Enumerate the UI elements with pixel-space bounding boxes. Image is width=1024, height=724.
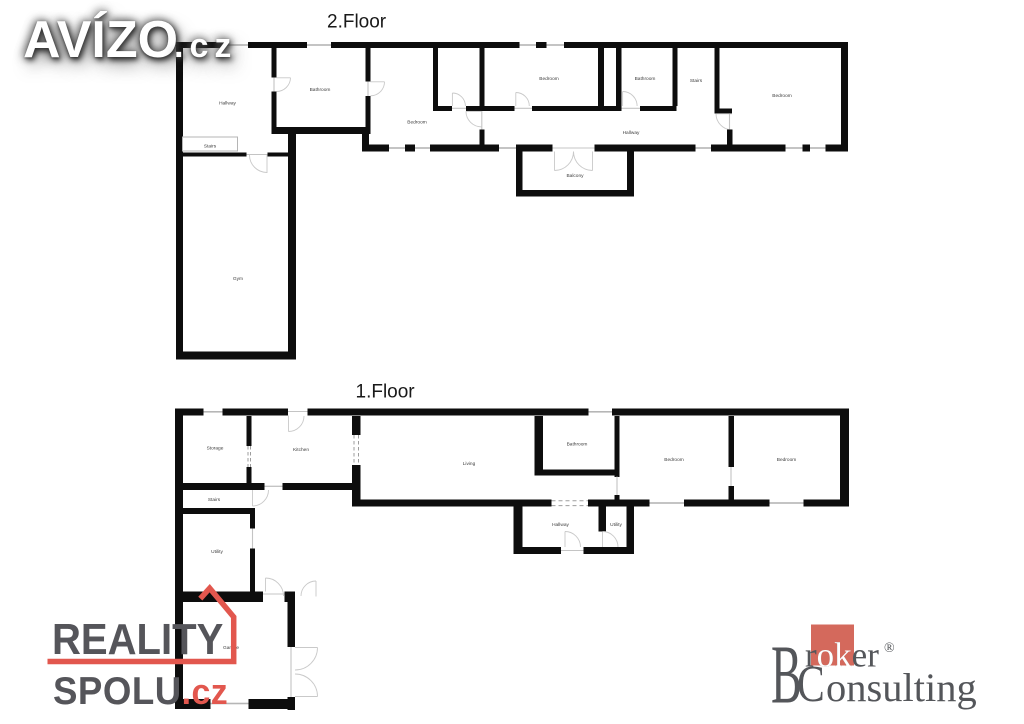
svg-text:Bathroom: Bathroom [310,87,331,93]
svg-text:®: ® [884,641,895,656]
svg-text:Stairs: Stairs [690,78,703,84]
svg-text:Bedroom: Bedroom [777,457,796,463]
svg-text:2.Floor: 2.Floor [327,12,387,33]
svg-text:Utility: Utility [610,522,622,528]
svg-text:Kitchen: Kitchen [293,447,309,453]
svg-text:Utility: Utility [211,549,223,555]
svg-text:Balcony: Balcony [566,173,584,179]
svg-text:Stairs: Stairs [204,144,217,150]
svg-text:Hallway: Hallway [623,130,640,136]
svg-text:Bedroom: Bedroom [539,76,558,82]
svg-text:onsulting: onsulting [826,665,977,710]
svg-text:Bedroom: Bedroom [664,457,683,463]
svg-text:Living: Living [463,461,476,467]
svg-text:Stairs: Stairs [208,497,221,503]
svg-text:Gym: Gym [233,276,243,282]
svg-text:Storage: Storage [207,446,224,452]
svg-text:1.Floor: 1.Floor [356,382,416,403]
svg-text:Bathroom: Bathroom [635,76,656,82]
svg-text:Bedroom: Bedroom [407,120,426,126]
svg-text:C: C [797,656,825,713]
svg-text:Bathroom: Bathroom [567,442,588,448]
svg-text:Bedroom: Bedroom [772,93,791,99]
svg-text:Hallway: Hallway [219,101,236,107]
svg-text:Hallway: Hallway [552,522,569,528]
